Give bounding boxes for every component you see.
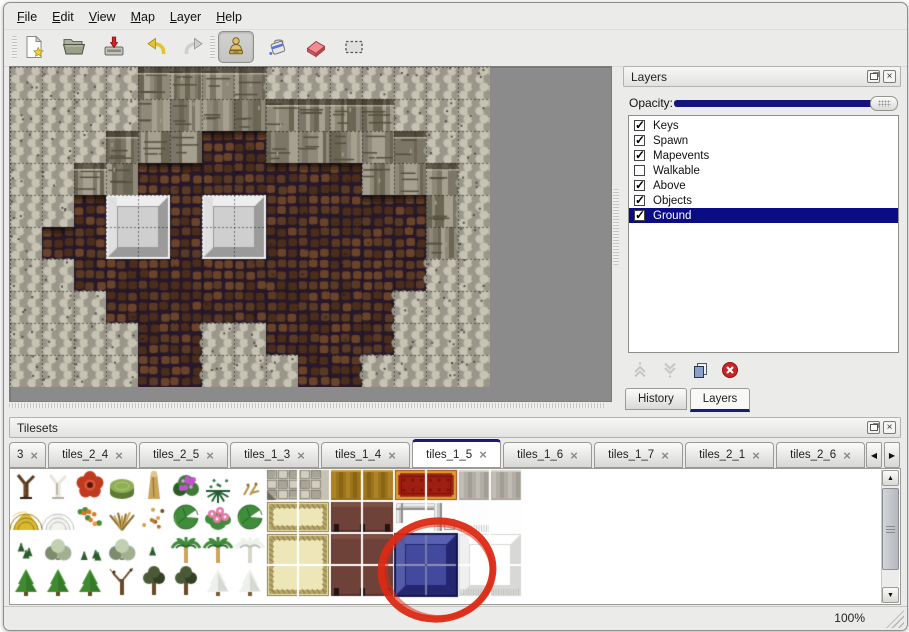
layers-panel: Layers × Opacity: ✓ Keys ✓ Spawn ✓ Map — [623, 66, 901, 415]
layer-row[interactable]: ✓ Ground — [629, 208, 898, 223]
thumb-grip — [886, 526, 895, 533]
eraser-icon — [303, 34, 329, 63]
layer-name: Keys — [653, 120, 679, 132]
menu-bar: FileEditViewMapLayerHelp — [4, 6, 908, 28]
close-panel-icon[interactable]: × — [883, 421, 896, 434]
select-tool-button[interactable] — [337, 33, 371, 63]
new-file-button[interactable] — [17, 33, 51, 63]
save-icon — [101, 34, 127, 63]
tileset-tab-label: tiles_1_4 — [335, 449, 381, 461]
layer-visibility-checkbox[interactable]: ✓ — [634, 150, 645, 161]
tileset-tab[interactable]: tiles_2_5 × — [139, 442, 228, 468]
tab-close-icon[interactable]: × — [661, 449, 669, 462]
tileset-tab[interactable]: tiles_2_6 × — [776, 442, 865, 468]
redo-button[interactable] — [177, 33, 211, 63]
layer-row[interactable]: Walkable — [629, 163, 898, 178]
undo-button[interactable] — [139, 33, 173, 63]
layer-name: Ground — [653, 210, 691, 222]
layers-panel-header: Layers × — [623, 66, 901, 87]
layer-name: Walkable — [653, 165, 700, 177]
tileset-tab[interactable]: tiles_1_7 × — [594, 442, 683, 468]
toolbar — [4, 30, 907, 67]
tileset-tab[interactable]: tiles_1_4 × — [321, 442, 410, 468]
layer-name: Mapevents — [653, 150, 709, 162]
layer-row[interactable]: ✓ Objects — [629, 193, 898, 208]
layer-name: Above — [653, 180, 686, 192]
tileset-tab[interactable]: tiles_2_1 × — [685, 442, 774, 468]
tileset-tab-label: tiles_1_5 — [426, 449, 472, 461]
tab-close-icon[interactable]: × — [479, 448, 487, 461]
undo-arrow-icon — [143, 34, 169, 63]
opacity-label: Opacity: — [629, 96, 673, 110]
tileset-tab[interactable]: tiles_1_6 × — [503, 442, 592, 468]
tab-close-icon[interactable]: × — [843, 449, 851, 462]
tileset-tab[interactable]: tiles_1_5 × — [412, 439, 501, 468]
tilesets-panel-header: Tilesets × — [9, 417, 901, 438]
horizontal-splitter[interactable] — [9, 403, 605, 408]
layer-row[interactable]: ✓ Above — [629, 178, 898, 193]
tileset-tab[interactable]: tiles_2_4 × — [48, 442, 137, 468]
layers-panel-title: Layers — [631, 70, 864, 84]
layer-visibility-checkbox[interactable]: ✓ — [634, 180, 645, 191]
tileset-tab[interactable]: 3 × — [9, 442, 46, 468]
opacity-row: Opacity: — [623, 93, 901, 113]
menu-item-view[interactable]: View — [89, 10, 116, 24]
layer-row[interactable]: ✓ Mapevents — [629, 148, 898, 163]
layer-list: ✓ Keys ✓ Spawn ✓ Mapevents Walkable ✓ Ab… — [628, 115, 899, 353]
dock-tab-bar: HistoryLayers — [625, 388, 750, 413]
fill-bucket-tool-button[interactable] — [261, 33, 295, 63]
eraser-tool-button[interactable] — [299, 33, 333, 63]
vertical-splitter[interactable] — [613, 189, 619, 265]
opacity-slider-handle[interactable] — [870, 96, 898, 111]
layer-visibility-checkbox[interactable] — [634, 165, 645, 176]
layer-row[interactable]: ✓ Keys — [629, 118, 898, 133]
float-panel-icon[interactable] — [867, 70, 880, 83]
map-canvas[interactable] — [10, 67, 490, 387]
tab-close-icon[interactable]: × — [30, 449, 38, 462]
stamp-person-icon — [223, 33, 249, 62]
float-panel-icon[interactable] — [867, 421, 880, 434]
toolbar-drag-handle[interactable] — [210, 36, 215, 60]
layer-visibility-checkbox[interactable]: ✓ — [634, 210, 645, 221]
app-window: FileEditViewMapLayerHelp — [3, 2, 908, 631]
move-layer-down-icon[interactable] — [659, 359, 681, 381]
layer-visibility-checkbox[interactable]: ✓ — [634, 195, 645, 206]
status-bar: 100% — [4, 606, 907, 631]
tileset-tab-label: tiles_1_7 — [608, 449, 654, 461]
layer-buttons — [629, 358, 741, 382]
tileset-tab[interactable]: tiles_1_3 × — [230, 442, 319, 468]
float-glyph — [870, 73, 878, 80]
layer-name: Objects — [653, 195, 692, 207]
stamp-tool-button[interactable] — [218, 31, 254, 63]
tileset-tab-label: tiles_1_3 — [244, 449, 290, 461]
menu-item-file[interactable]: File — [17, 10, 37, 24]
paint-bucket-icon — [265, 34, 291, 63]
tileset-content: ▲ ▼ — [9, 468, 901, 605]
map-viewport — [9, 66, 612, 402]
redo-arrow-icon — [181, 34, 207, 63]
zoom-level: 100% — [834, 611, 865, 625]
tileset-tab-label: tiles_2_6 — [790, 449, 836, 461]
tab-close-icon[interactable]: × — [752, 449, 760, 462]
tileset-scrollbar: ▲ ▼ — [881, 470, 899, 603]
scroll-down-icon[interactable]: ▼ — [882, 587, 899, 603]
tab-close-icon[interactable]: × — [115, 449, 123, 462]
tab-close-icon[interactable]: × — [570, 449, 578, 462]
scroll-tabs-left-icon[interactable]: ◀ — [866, 442, 882, 468]
tileset-canvas[interactable] — [10, 469, 883, 604]
scroll-tabs-right-icon[interactable]: ▶ — [884, 442, 900, 468]
delete-layer-icon[interactable] — [719, 359, 741, 381]
layer-visibility-checkbox[interactable]: ✓ — [634, 120, 645, 131]
menu-item-edit[interactable]: Edit — [52, 10, 74, 24]
layer-name: Spawn — [653, 135, 688, 147]
tileset-tab-label: tiles_2_1 — [699, 449, 745, 461]
menu-item-map[interactable]: Map — [131, 10, 155, 24]
dock-tab-history[interactable]: History — [625, 388, 687, 410]
tileset-tab-label: tiles_2_4 — [62, 449, 108, 461]
float-glyph — [870, 424, 878, 431]
duplicate-layer-icon[interactable] — [689, 359, 711, 381]
tileset-tab-label: 3 — [17, 449, 23, 461]
tab-close-icon[interactable]: × — [206, 449, 214, 462]
dock-tab-layers[interactable]: Layers — [690, 388, 751, 412]
tilesets-panel-title: Tilesets — [17, 421, 864, 435]
tileset-tab-bar: 3 × tiles_2_4 × tiles_2_5 × tiles_1_3 × … — [9, 438, 901, 468]
tab-close-icon[interactable]: × — [297, 449, 305, 462]
tab-close-icon[interactable]: × — [388, 449, 396, 462]
close-panel-icon[interactable]: × — [883, 70, 896, 83]
opacity-slider[interactable] — [674, 100, 876, 107]
move-layer-up-icon[interactable] — [629, 359, 651, 381]
new-file-icon — [21, 34, 47, 63]
save-button[interactable] — [97, 33, 131, 63]
scroll-up-icon[interactable]: ▲ — [882, 470, 899, 486]
scrollbar-thumb[interactable] — [882, 488, 899, 570]
open-folder-icon — [61, 34, 87, 63]
opacity-slider-fill — [674, 100, 876, 107]
layer-row[interactable]: ✓ Spawn — [629, 133, 898, 148]
resize-grip[interactable] — [886, 610, 904, 628]
open-file-button[interactable] — [57, 33, 91, 63]
layer-visibility-checkbox[interactable]: ✓ — [634, 135, 645, 146]
tileset-tab-label: tiles_2_5 — [153, 449, 199, 461]
menu-item-help[interactable]: Help — [216, 10, 242, 24]
menu-item-layer[interactable]: Layer — [170, 10, 201, 24]
tilesets-panel: Tilesets × 3 × tiles_2_4 × tiles_2_5 × t… — [9, 417, 901, 605]
tileset-tab-label: tiles_1_6 — [517, 449, 563, 461]
tileset-tabs: 3 × tiles_2_4 × tiles_2_5 × tiles_1_3 × … — [9, 439, 865, 468]
selection-rectangle-icon — [341, 34, 367, 63]
